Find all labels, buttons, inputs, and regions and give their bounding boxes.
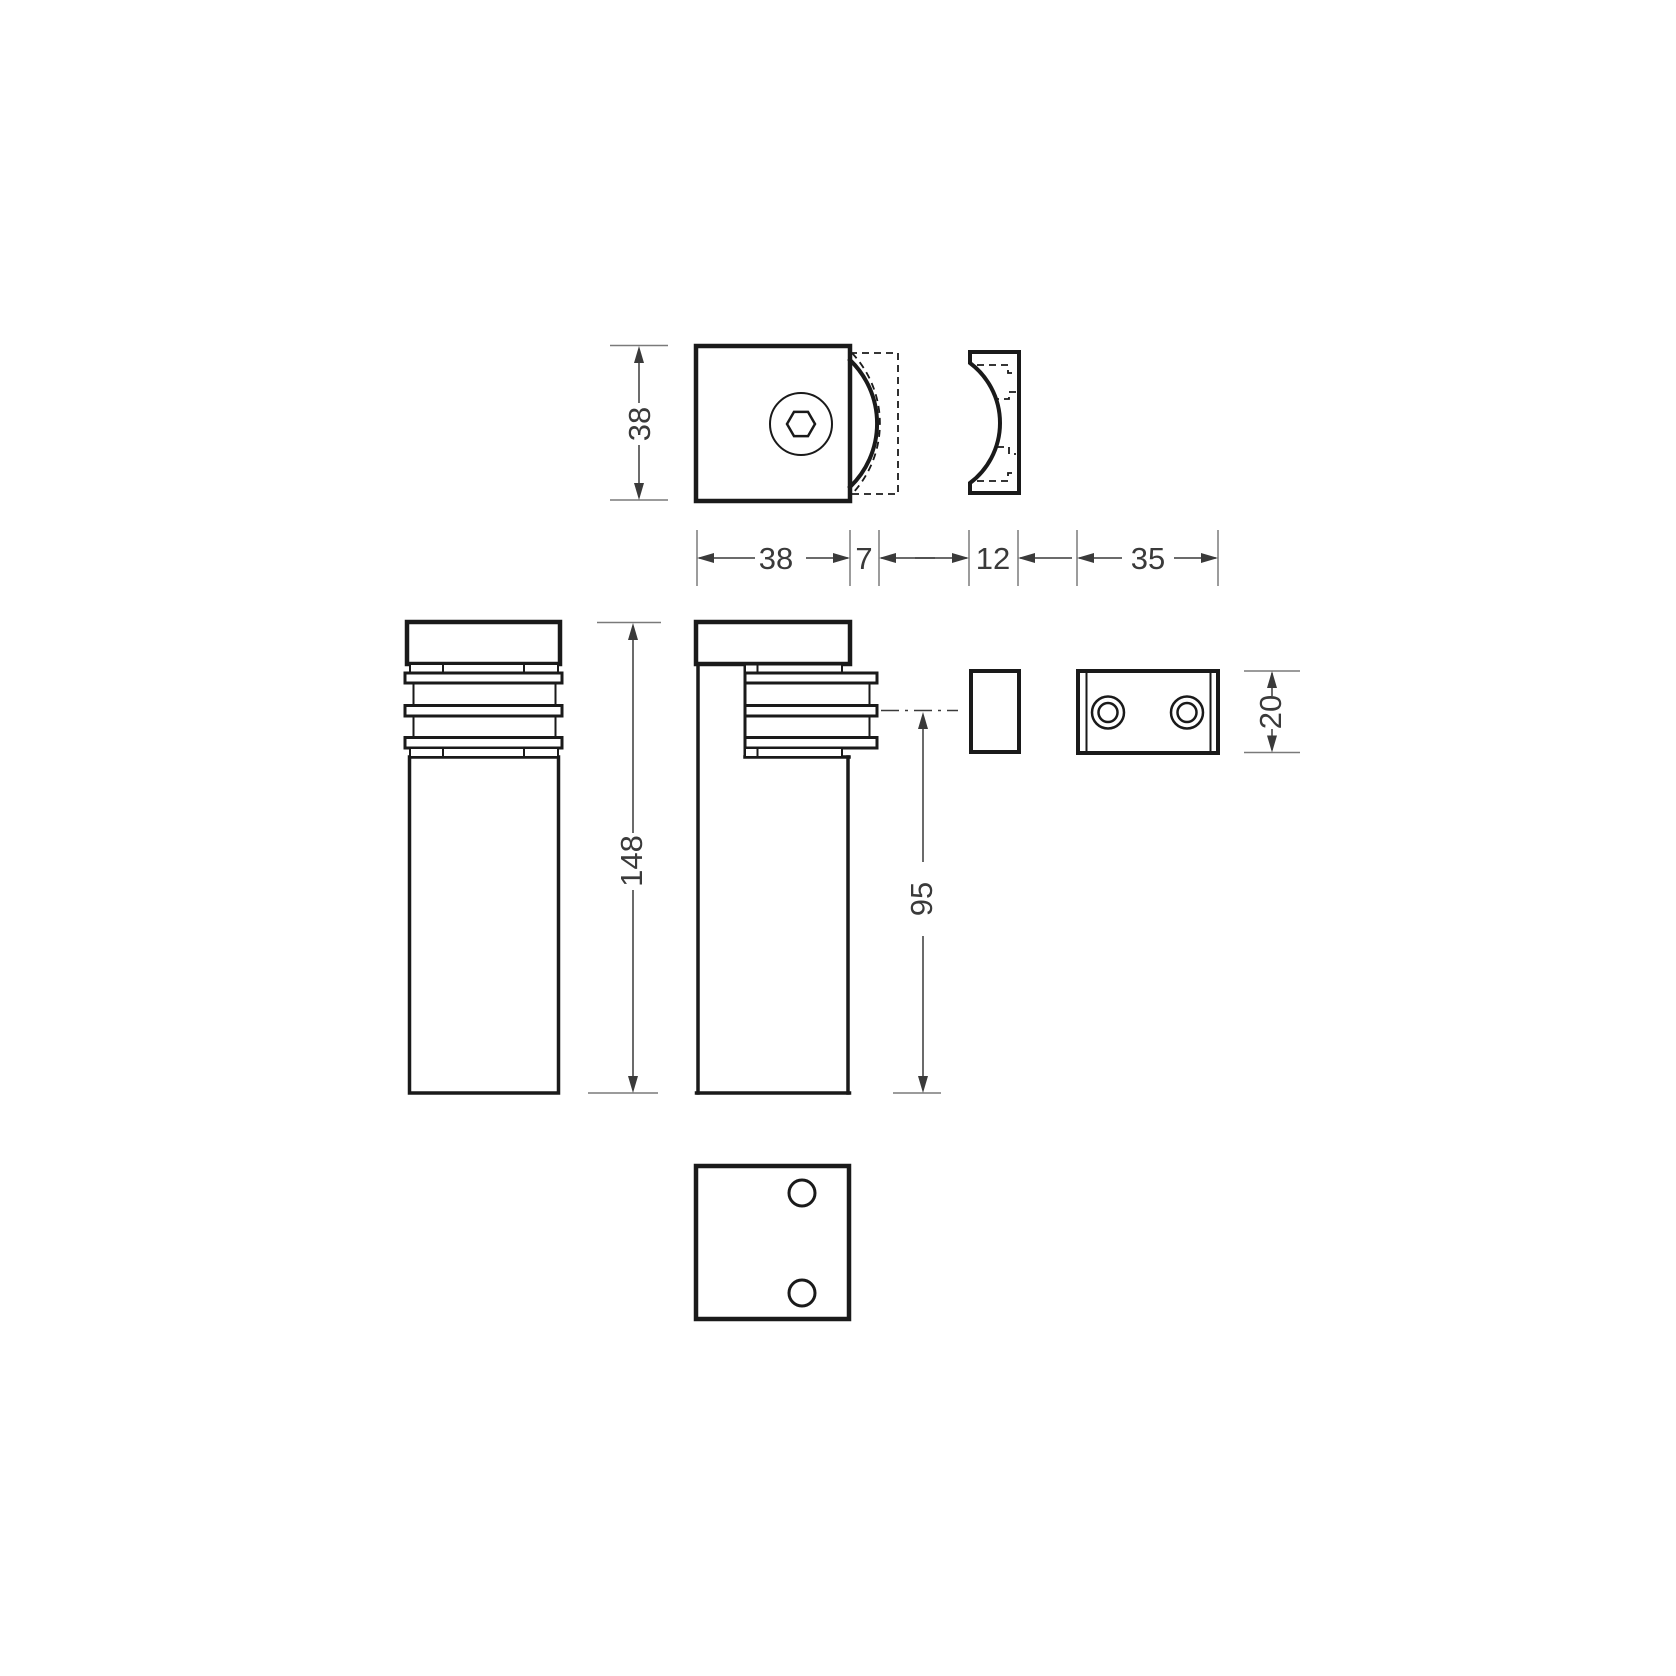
gasket-side-view	[971, 671, 1019, 752]
dimension-backplate-height: 20	[1244, 671, 1300, 753]
arrowhead-right-icon	[1201, 553, 1218, 563]
dimensioned-drawing: 38 38 7 12	[0, 0, 1676, 1676]
dim-label-clamp-projection: 7	[855, 541, 872, 576]
cap	[696, 622, 850, 664]
clamp-bulge-arc	[850, 360, 877, 487]
dim-label-clamp-height: 38	[622, 407, 657, 441]
dim-label-clamp-width: 38	[759, 541, 793, 576]
side-view	[696, 622, 958, 1093]
arrowhead-up-icon	[1267, 671, 1277, 688]
dim-label-backplate-height: 20	[1253, 695, 1288, 729]
arrowhead-right-icon	[952, 553, 969, 563]
front-view	[405, 622, 562, 1093]
bottom-view	[696, 1166, 849, 1319]
arrowhead-up-icon	[634, 346, 644, 363]
arrowhead-left-icon	[879, 553, 896, 563]
dimension-clamp-height: 38	[610, 346, 668, 501]
post-body	[410, 757, 559, 1093]
screw-hole-outer	[1092, 697, 1124, 729]
arrowhead-down-icon	[634, 483, 644, 500]
hidden-glass-panel-outline	[850, 353, 898, 494]
spacer-band	[745, 748, 842, 757]
screw-hole-outer	[1171, 697, 1203, 729]
arrowhead-down-icon	[918, 1076, 928, 1093]
arrowhead-down-icon	[628, 1076, 638, 1093]
spacer-band	[410, 748, 558, 757]
arrowhead-right-icon	[833, 553, 850, 563]
arrowhead-left-icon	[1077, 553, 1094, 563]
louver-fin	[745, 673, 877, 683]
arrowhead-left-icon	[1018, 553, 1035, 563]
mount-hole	[789, 1180, 815, 1206]
dimension-body-height: 148	[588, 623, 661, 1094]
top-view	[696, 346, 898, 501]
louver-fin	[405, 706, 562, 717]
mount-hole	[789, 1280, 815, 1306]
dimension-clamp-center-height: 95	[893, 712, 941, 1093]
arrowhead-left-icon	[697, 553, 714, 563]
cap	[407, 622, 560, 664]
louver-fin	[405, 673, 562, 683]
technical-drawing-canvas: 38 38 7 12	[0, 0, 1676, 1676]
dim-label-gasket-thickness: 12	[976, 541, 1010, 576]
louver-fin	[405, 738, 562, 749]
dim-label-body-height: 148	[614, 835, 649, 887]
backplate-view	[1078, 671, 1218, 753]
mount-plate-outline	[696, 1166, 849, 1319]
arrowhead-up-icon	[918, 712, 928, 729]
arrowhead-down-icon	[1267, 736, 1277, 753]
gasket-profile-view	[970, 352, 1019, 493]
dim-label-clamp-center-height: 95	[904, 882, 939, 916]
louver-fin	[745, 706, 877, 717]
gasket-outline	[971, 671, 1019, 752]
screw-head-circle	[770, 393, 832, 455]
dim-label-backplate-width: 35	[1131, 541, 1165, 576]
louver-fin	[745, 738, 877, 749]
horizontal-dimension-row: 38 7 12 35	[697, 530, 1218, 586]
arrowhead-up-icon	[628, 623, 638, 640]
